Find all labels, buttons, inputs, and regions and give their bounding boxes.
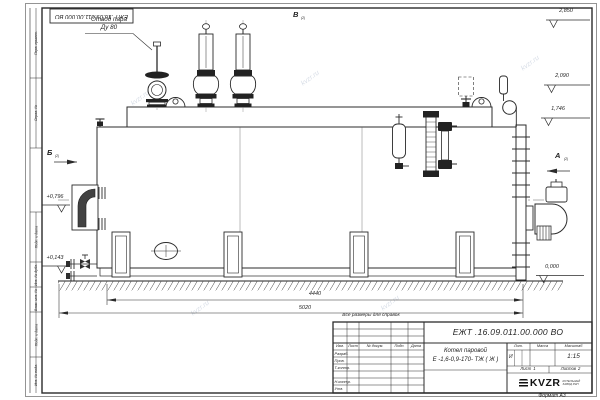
sheet-cell: Лист 1 <box>507 366 549 373</box>
col-header-doc: № докум. <box>359 345 391 349</box>
row-tkontr: Т.контр. <box>335 366 351 370</box>
elevation-2090: 2,090 <box>544 74 580 80</box>
lifting-lug-icon <box>166 98 491 108</box>
callout-line2: Ду 80 <box>78 24 140 32</box>
margin-cell-inv-podl: Инв. № подл. <box>31 357 42 393</box>
vent-valve-icon <box>459 77 474 107</box>
elevation-2850: 2,850 <box>548 9 584 15</box>
margin-label: Инв. № дубл. <box>34 263 38 285</box>
elevation-0000: 0,000 <box>534 265 570 271</box>
safety-valve-icon <box>230 20 255 112</box>
ground-line <box>58 281 563 291</box>
product-name: Котел паровой Е -1,6-0,9-170- ТЖ ( Ж ) <box>424 347 507 365</box>
sheets-value: 2 <box>578 367 580 371</box>
leader-line <box>85 34 152 51</box>
margin-label: Подп. и дата <box>34 226 38 249</box>
reference-note: Все размеры для справок <box>331 314 411 319</box>
burner-icon <box>526 179 567 240</box>
view-label-b: Б <box>47 149 52 157</box>
view-label-v-ref: (2) <box>301 17 305 20</box>
lit-value: И <box>507 355 515 360</box>
view-label-b-ref: (2) <box>55 155 59 158</box>
elevation-plus0796: +0,796 <box>40 195 70 201</box>
margin-cell-podp-data-2: Подп. и дата <box>31 312 42 357</box>
sheet-label: Лист <box>520 367 531 371</box>
col-header-list: Лист <box>347 345 359 349</box>
callout-line1: Отвод пара <box>78 16 140 24</box>
product-name-line2: Е -1,6-0,9-170- ТЖ ( Ж ) <box>424 356 507 365</box>
lit-header: Лит. <box>507 345 530 349</box>
title-block-designation: ЕЖТ .16.09.011.00.000 ВО <box>424 322 592 343</box>
view-label-v: В <box>293 11 298 19</box>
col-header-sign: Подп. <box>391 345 408 349</box>
safety-valve-icon <box>193 20 218 112</box>
product-name-line1: Котел паровой <box>424 347 507 356</box>
margin-cell-podp-data-1: Подп. и дата <box>31 212 42 262</box>
logo-text: KVZR <box>530 377 561 389</box>
steam-valve-icon <box>145 42 169 112</box>
sheet-value: 1 <box>533 367 535 371</box>
margin-label: Инв. № подл. <box>34 364 38 386</box>
view-label-a-ref: (2) <box>564 158 568 161</box>
steam-outlet-callout: Отвод пара Ду 80 <box>78 16 140 32</box>
sheets-label: Листов <box>561 367 576 371</box>
scale-header: Масштаб <box>555 345 592 349</box>
logo-bars-icon <box>519 379 528 388</box>
margin-label: Взам. инв. № <box>34 288 38 310</box>
margin-label: Подп. и дата <box>34 323 38 346</box>
col-header-izm: Изм. <box>333 345 347 349</box>
company-logo: KVZR КОТЕЛЬНЫЙ ЗАВОД РЭП <box>507 373 592 393</box>
margin-label: Перв. примен. <box>34 31 38 55</box>
sheets-cell: Листов 2 <box>549 366 592 373</box>
dimension-overall: 5020 <box>285 306 325 312</box>
small-fitting-icon <box>96 119 105 127</box>
mass-header: Масса <box>530 345 555 349</box>
format-label: Формат А3 <box>512 394 592 399</box>
view-label-a: А <box>555 152 560 160</box>
margin-label: Справ. № <box>34 105 38 121</box>
row-utv: Утв. <box>335 387 344 391</box>
margin-cell-vzam-inv: Взам. инв. № <box>31 287 42 312</box>
dimension-span: 4440 <box>295 292 335 298</box>
logo-sub-line2: ЗАВОД РЭП <box>562 383 580 386</box>
row-nkontr: Н.контр. <box>335 380 351 384</box>
margin-cell-sprav-no: Справ. № <box>31 78 42 148</box>
margin-cell-perv-primen: Перв. примен. <box>31 8 42 78</box>
drain-valves-icon <box>66 255 97 281</box>
row-razrab: Разраб. <box>335 352 349 356</box>
scale-value: 1:15 <box>555 354 592 361</box>
row-prov: Пров. <box>335 359 345 363</box>
drawing-sheet: kvzr.ru kvzr.ru kvzr.ru kvzr.ru kvzr.ru … <box>0 0 600 400</box>
elevation-plus0143: +0,143 <box>40 256 70 262</box>
pressure-gauge-icon <box>500 76 517 127</box>
elevation-1746: 1,746 <box>540 107 576 113</box>
col-header-date: Дата <box>408 345 424 349</box>
logo-subtext: КОТЕЛЬНЫЙ ЗАВОД РЭП <box>562 380 580 387</box>
margin-cell-inv-dubl: Инв. № дубл. <box>31 262 42 287</box>
